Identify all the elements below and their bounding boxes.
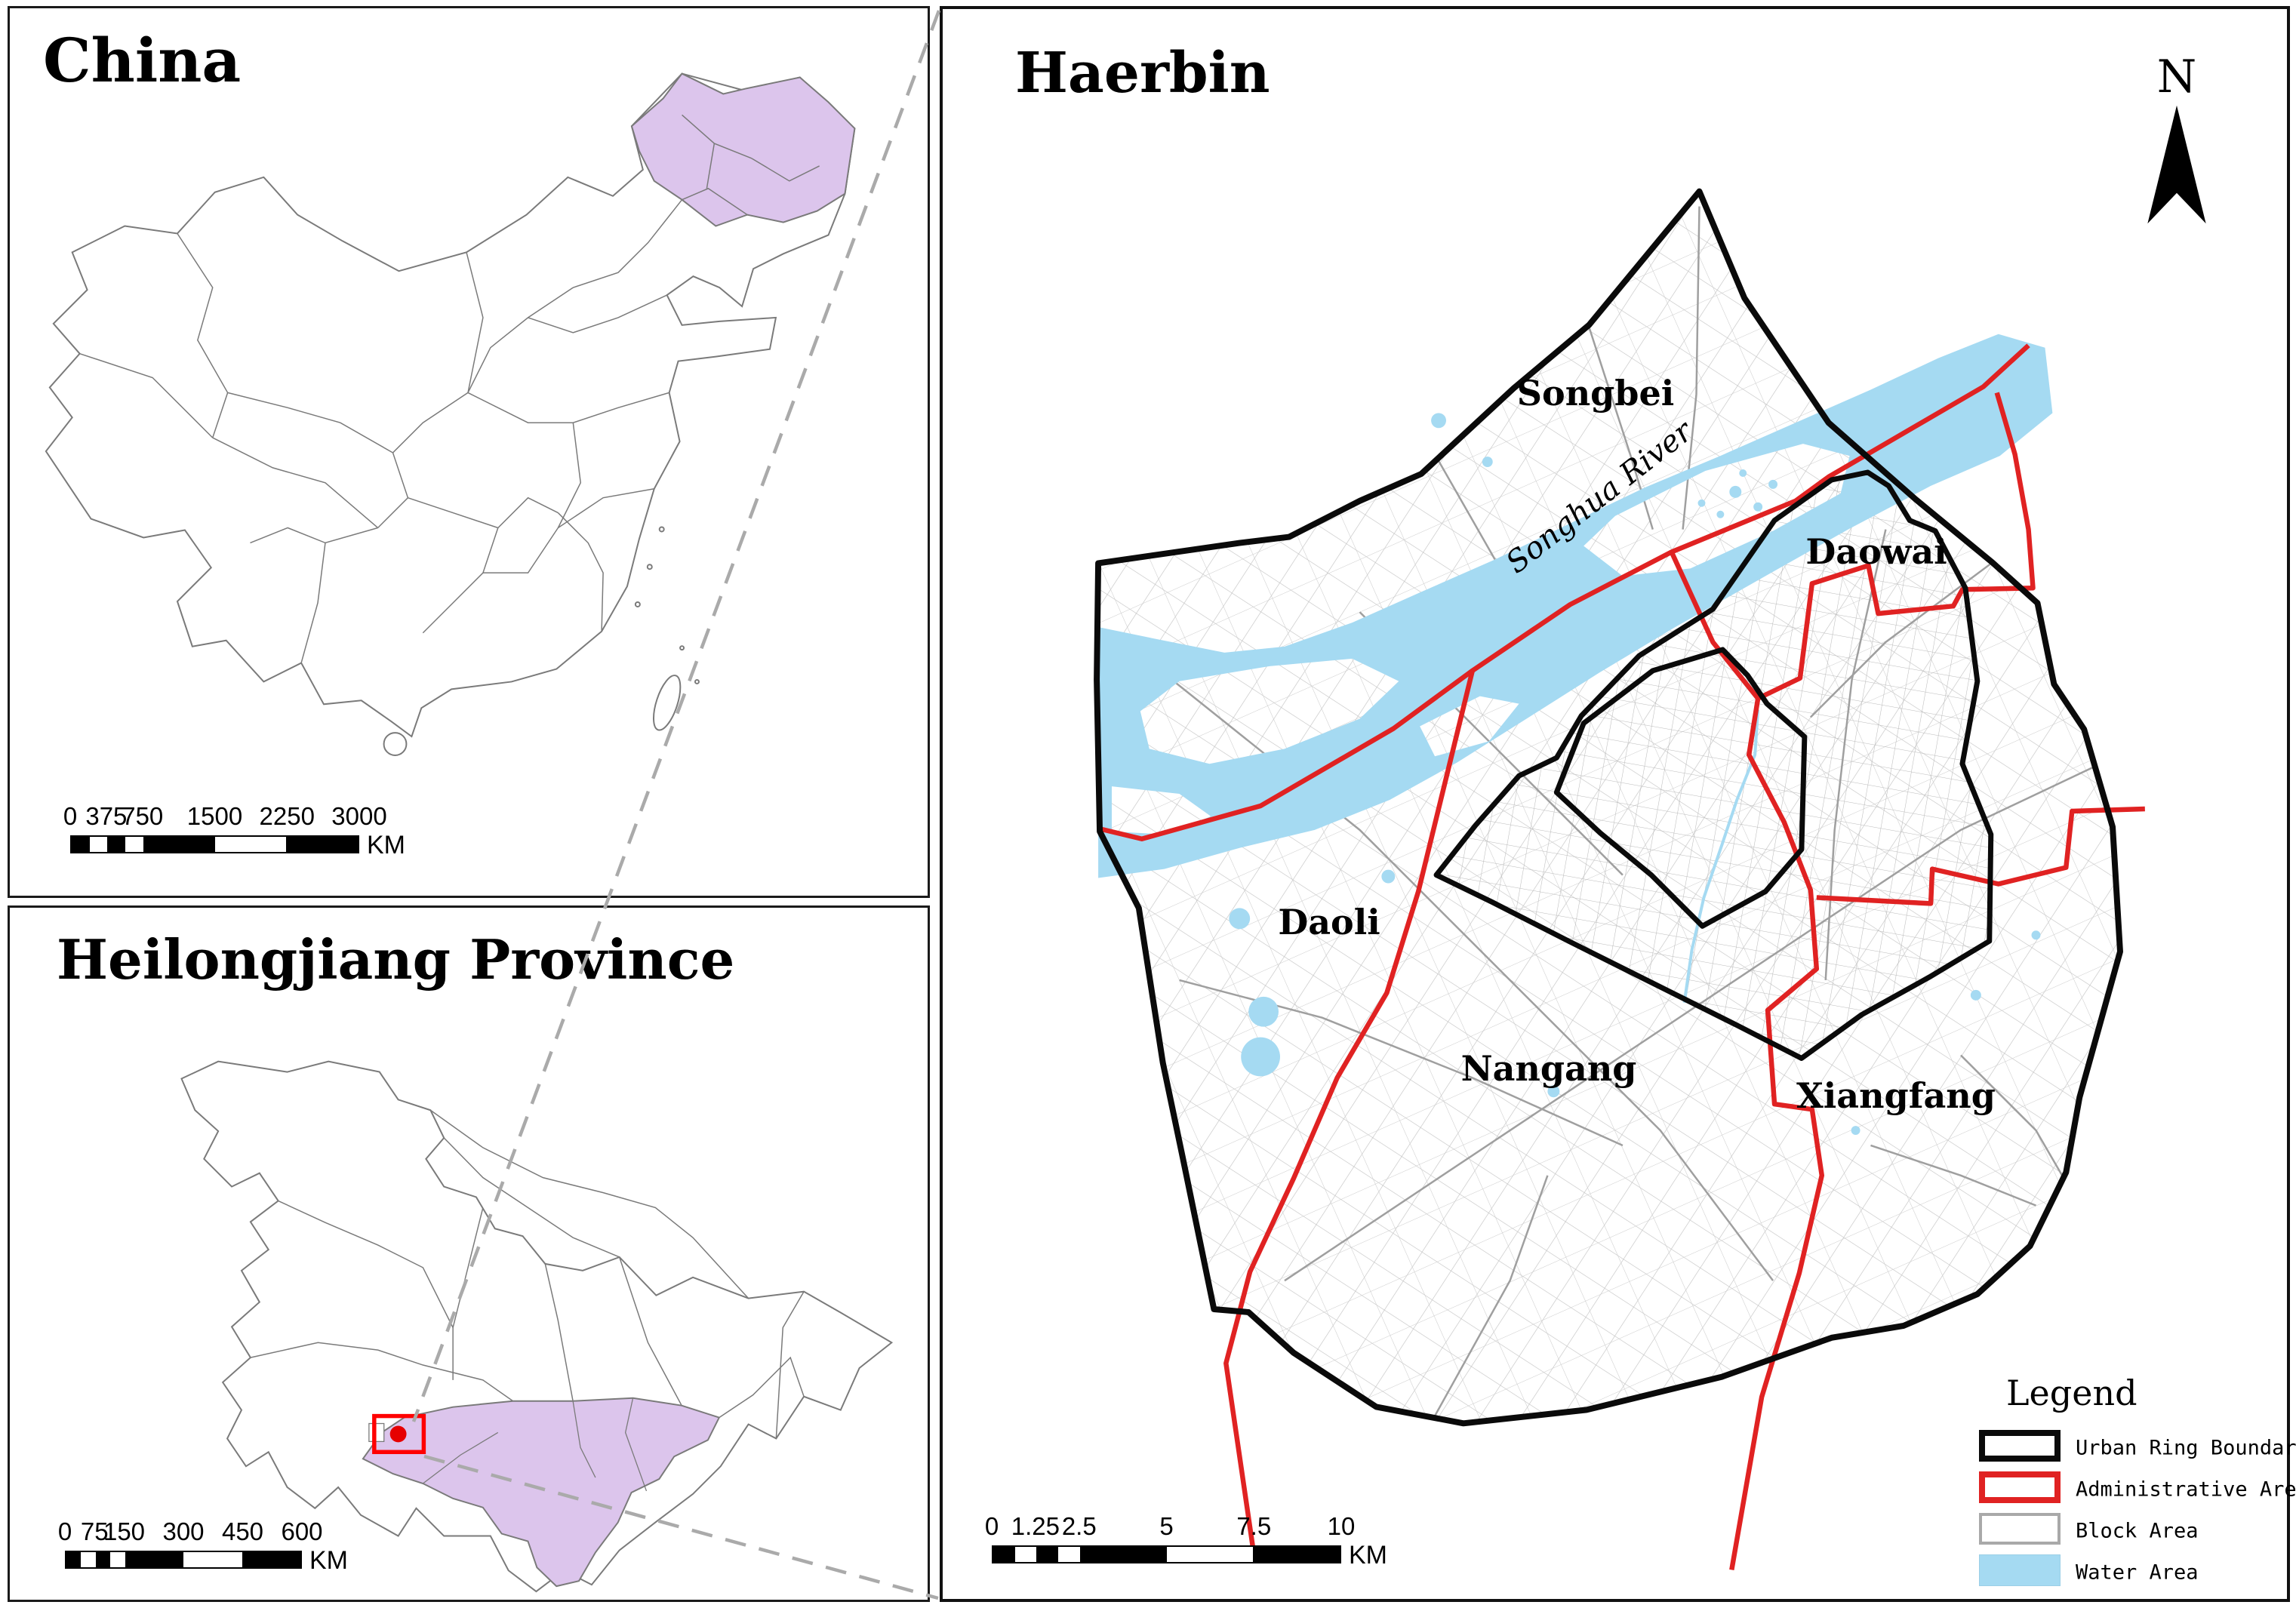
legend: Legend Urban Ring Boundary Administrativ… [1979, 1373, 2288, 1593]
tick: 450 [222, 1517, 263, 1546]
haerbin-scalebar-unit: KM [1349, 1541, 1387, 1570]
legend-label: Block Area [2076, 1519, 2199, 1542]
legend-row-block: Block Area [1979, 1510, 2288, 1551]
legend-row-urban-ring: Urban Ring Boundary [1979, 1427, 2288, 1468]
china-outline-group [46, 74, 855, 755]
tick: 600 [281, 1517, 322, 1546]
panel-haerbin-main: Songbei Daowai Daoli Nangang Xiangfang S… [940, 6, 2290, 1602]
tick: 375 [85, 802, 127, 831]
heilongjiang-map-svg [10, 908, 928, 1600]
haerbin-scalebar-ticks: 0 1.25 2.5 5 7.5 10 [992, 1512, 1341, 1542]
tick: 750 [122, 802, 163, 831]
label-songbei: Songbei [1517, 373, 1674, 414]
harbin-white-notch [369, 1424, 384, 1442]
label-nangang: Nangang [1461, 1048, 1637, 1089]
north-arrow-icon [2142, 104, 2211, 225]
tick: 0 [63, 802, 77, 831]
china-scalebar-bar [70, 835, 359, 853]
heilongjiang-outline-group [181, 1062, 891, 1591]
haerbin-scalebar-bar [992, 1545, 1341, 1563]
heilongjiang-scalebar-ticks: 0 75 150 300 450 600 [65, 1517, 302, 1548]
figure-study-area: { "panels": { "china": { "title": "China… [0, 0, 2296, 1608]
label-daoli: Daoli [1278, 902, 1380, 942]
administrative-swatch-icon [1979, 1471, 2061, 1503]
tick: 5 [1159, 1512, 1173, 1541]
legend-label: Water Area [2076, 1560, 2199, 1584]
label-daowai: Daowai [1805, 531, 1947, 572]
study-area-dot [390, 1426, 407, 1443]
tick: 1500 [187, 802, 242, 831]
north-arrow: N [2135, 54, 2218, 229]
tick: 7.5 [1236, 1512, 1271, 1541]
panel-heilongjiang-inset: Heilongjiang Province 0 75 150 300 450 6… [8, 905, 930, 1602]
urban-ring-swatch-icon [1979, 1430, 2061, 1462]
tick: 10 [1328, 1512, 1356, 1541]
tick: 2.5 [1062, 1512, 1097, 1541]
tick: 3000 [331, 802, 386, 831]
tick: 150 [103, 1517, 145, 1546]
china-scalebar-unit: KM [367, 831, 405, 860]
label-xiangfang: Xiangfang [1796, 1075, 1996, 1116]
legend-row-water: Water Area [1979, 1551, 2288, 1593]
tick: 2250 [260, 802, 315, 831]
heilongjiang-scalebar-unit: KM [309, 1546, 348, 1576]
china-map-svg [10, 8, 928, 896]
tick: 0 [58, 1517, 72, 1546]
tick: 0 [985, 1512, 999, 1541]
tick: 1.25 [1011, 1512, 1060, 1541]
haerbin-map-svg [943, 9, 2287, 1599]
block-area-swatch-icon [1979, 1513, 2061, 1545]
china-panel-title: China [43, 25, 241, 96]
legend-row-administrative: Administrative Area [1979, 1468, 2288, 1510]
legend-label: Administrative Area [2076, 1477, 2296, 1501]
legend-label: Urban Ring Boundary [2076, 1436, 2296, 1459]
heilongjiang-panel-title: Heilongjiang Province [57, 927, 734, 992]
north-arrow-label: N [2135, 54, 2218, 100]
china-hainan [384, 733, 407, 755]
heilongjiang-scalebar-bar [65, 1551, 302, 1569]
legend-title: Legend [2006, 1373, 2288, 1413]
china-taiwan [648, 672, 686, 733]
china-scalebar-ticks: 0 375 750 1500 2250 3000 [70, 802, 359, 832]
block-area-network [943, 10, 2287, 1599]
water-area-swatch-icon [1979, 1554, 2061, 1586]
tick: 300 [162, 1517, 204, 1546]
haerbin-panel-title: Haerbin [1015, 41, 1270, 106]
panel-china-inset: China 0 375 750 1500 2250 3000 KM [8, 6, 930, 898]
